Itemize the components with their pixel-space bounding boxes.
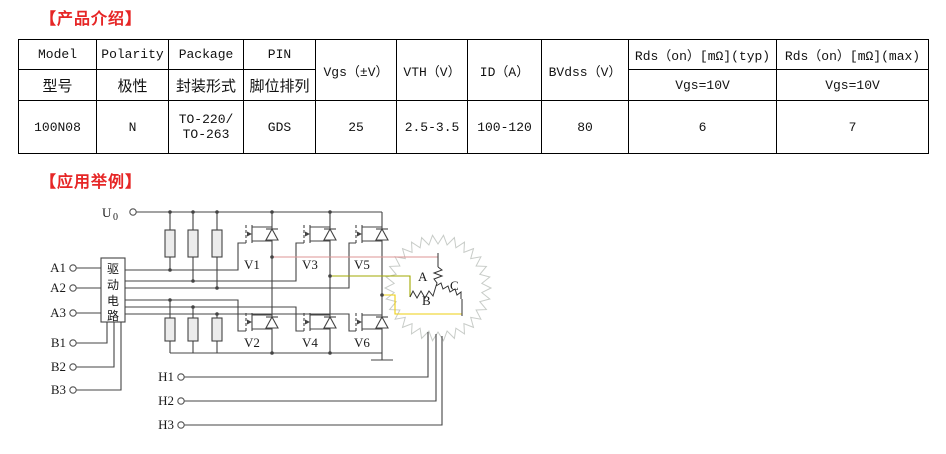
driver-box-char-2: 动 xyxy=(107,278,119,292)
mosfet-v1 xyxy=(246,225,278,243)
cell-model-value: 100N08 xyxy=(19,101,97,154)
header-cell-vgs: Vgs（±V） xyxy=(316,40,397,101)
fet-label-v1: V1 xyxy=(244,257,260,272)
fet-label-v6: V6 xyxy=(354,335,370,350)
section-title-product-intro: 【产品介绍】 xyxy=(40,5,142,29)
table-data-row: 100N08 N TO-220/ TO-263 GDS 25 2.5-3.5 1… xyxy=(19,101,929,154)
header-cell-model-cn: 型号 xyxy=(19,70,97,101)
header-cell-rds-max: Rds（on）[mΩ](max) xyxy=(777,40,929,70)
cell-rds-typ-value: 6 xyxy=(629,101,777,154)
body-diode xyxy=(324,229,336,240)
driver-box-char-3: 电 xyxy=(107,294,119,308)
body-diode xyxy=(376,317,388,328)
input-label-b3: B3 xyxy=(51,382,66,397)
resistor xyxy=(212,230,222,257)
body-diode xyxy=(376,229,388,240)
driver-box-char-4: 路 xyxy=(107,308,119,323)
section-title-application-example: 【应用举例】 xyxy=(40,168,142,192)
header-cell-polarity: Polarity xyxy=(97,40,169,70)
resistor xyxy=(212,318,222,341)
header-cell-id: ID（A） xyxy=(468,40,542,101)
junction-dots xyxy=(168,210,384,355)
header-cell-polarity-cn: 极性 xyxy=(97,70,169,101)
body-diode xyxy=(324,317,336,328)
input-label-a3: A3 xyxy=(50,305,66,320)
channel-arrow xyxy=(305,320,310,325)
input-label-a2: A2 xyxy=(50,280,66,295)
channel-arrow xyxy=(357,320,362,325)
fet-label-v3: V3 xyxy=(302,257,318,272)
package-line-1: TO-220/ xyxy=(171,112,241,127)
channel-arrow xyxy=(305,232,310,237)
input-label-b1: B1 xyxy=(51,335,66,350)
subheader-rds-typ-condition: Vgs=10V xyxy=(629,70,777,101)
fet-label-v5: V5 xyxy=(354,257,370,272)
mosfet-v6 xyxy=(356,313,388,331)
gate-bus-lines xyxy=(125,243,356,331)
motor-stator-ring xyxy=(385,235,491,340)
phase-label-a: A xyxy=(418,269,428,284)
body-diode xyxy=(266,229,278,240)
header-cell-vth: VTH（V） xyxy=(397,40,468,101)
header-cell-package: Package xyxy=(169,40,244,70)
input-label-a1: A1 xyxy=(50,260,66,275)
body-diode xyxy=(266,317,278,328)
channel-arrow xyxy=(357,232,362,237)
supply-terminal xyxy=(130,209,136,215)
input-label-h2: H2 xyxy=(158,393,174,408)
header-cell-bvdss: BVdss（V） xyxy=(542,40,629,101)
input-label-h1: H1 xyxy=(158,369,174,384)
cell-vgs-value: 25 xyxy=(316,101,397,154)
supply-label: U xyxy=(102,205,112,220)
cell-vth-value: 2.5-3.5 xyxy=(397,101,468,154)
cell-bvdss-value: 80 xyxy=(542,101,629,154)
gate-resistor-bank-top xyxy=(165,212,222,288)
cell-rds-max-value: 7 xyxy=(777,101,929,154)
input-label-h3: H3 xyxy=(158,417,174,432)
phase-label-c: C xyxy=(450,278,459,293)
mosfet-v3 xyxy=(304,225,336,243)
application-circuit-diagram: U 0 驱 动 电 路 A1 A2 A3 B1 B2 B3 H1 H2 H3 V… xyxy=(0,195,946,454)
header-cell-model: Model xyxy=(19,40,97,70)
mosfet-v2 xyxy=(246,313,278,331)
cell-polarity-value: N xyxy=(97,101,169,154)
driver-box-char-1: 驱 xyxy=(107,262,119,276)
phase-label-b: B xyxy=(422,293,431,308)
cell-package-value: TO-220/ TO-263 xyxy=(169,101,244,154)
mosfet-v4 xyxy=(304,313,336,331)
table-header-row-en: Model Polarity Package PIN Vgs（±V） VTH（V… xyxy=(19,40,929,70)
cell-pin-value: GDS xyxy=(244,101,316,154)
header-cell-pin-cn: 脚位排列 xyxy=(244,70,316,101)
subheader-rds-max-condition: Vgs=10V xyxy=(777,70,929,101)
header-cell-package-cn: 封装形式 xyxy=(169,70,244,101)
spec-table: Model Polarity Package PIN Vgs（±V） VTH（V… xyxy=(18,39,929,154)
resistor xyxy=(188,318,198,341)
resistor xyxy=(165,230,175,257)
cell-id-value: 100-120 xyxy=(468,101,542,154)
fet-label-v4: V4 xyxy=(302,335,318,350)
mosfet-v5 xyxy=(356,225,388,243)
resistor xyxy=(188,230,198,257)
fet-label-v2: V2 xyxy=(244,335,260,350)
channel-arrow xyxy=(247,320,252,325)
supply-label-sub: 0 xyxy=(113,212,118,223)
channel-arrow xyxy=(247,232,252,237)
resistor xyxy=(165,318,175,341)
header-cell-rds-typ: Rds（on）[mΩ](typ) xyxy=(629,40,777,70)
datasheet-page: { "sections": { "intro_title": "【产品介绍】",… xyxy=(0,0,946,454)
header-cell-pin: PIN xyxy=(244,40,316,70)
phase-wire-b xyxy=(330,276,410,297)
input-label-b2: B2 xyxy=(51,359,66,374)
package-line-2: TO-263 xyxy=(171,127,241,142)
